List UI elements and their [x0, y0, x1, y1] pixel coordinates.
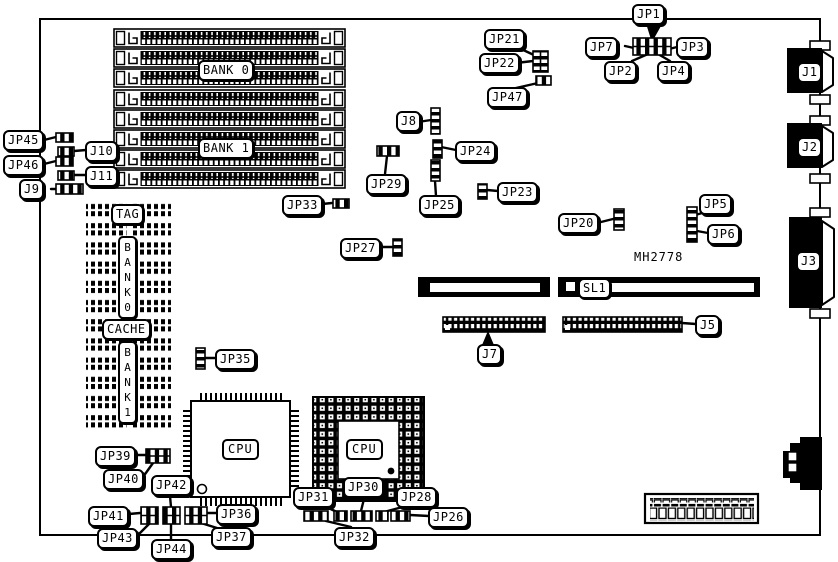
motherboard-diagram: JP1 JP7 JP3 JP2 JP4 JP21 JP22 JP47 J8 JP…: [0, 0, 838, 562]
simm-sockets: [114, 29, 345, 188]
power-connector: [645, 494, 758, 523]
callout-jp45: JP45: [3, 130, 44, 151]
jp26-jumper-block: [391, 511, 410, 521]
callout-jp44: JP44: [151, 539, 192, 560]
header-j5-pin1: [565, 325, 570, 330]
callout-jp28: JP28: [396, 487, 437, 508]
jp25-jumper-block: [431, 160, 440, 181]
callout-j10: J10: [85, 141, 118, 162]
callout-jp1: JP1: [632, 4, 665, 25]
j3-label: J3: [796, 251, 821, 272]
jp29-jumper-block: [377, 146, 399, 156]
callout-jp43: JP43: [97, 528, 138, 549]
callout-jp42: JP42: [151, 475, 192, 496]
callout-jp22: JP22: [479, 53, 520, 74]
callout-jp4: JP4: [657, 61, 690, 82]
callout-jp39: JP39: [95, 446, 136, 467]
callout-jp3: JP3: [676, 37, 709, 58]
callout-jp35: JP35: [215, 349, 256, 370]
jp35-jumper-block: [196, 348, 205, 369]
callout-j9: J9: [19, 179, 44, 200]
isa-slot-sl1-channel: [610, 283, 754, 292]
callout-jp33: JP33: [282, 195, 323, 216]
callout-jp26: JP26: [428, 507, 469, 528]
callout-jp7: JP7: [585, 37, 618, 58]
callout-jp30: JP30: [343, 477, 384, 498]
sl1-label: SL1: [578, 278, 611, 299]
callout-jp47: JP47: [487, 87, 528, 108]
callout-jp24: JP24: [455, 141, 496, 162]
callout-jp27: JP27: [340, 238, 381, 259]
callout-jp23: JP23: [497, 182, 538, 203]
j9-jumper-block: [56, 184, 83, 194]
j11-jumper-block: [58, 171, 74, 180]
callout-jp2: JP2: [604, 61, 637, 82]
callout-jp32: JP32: [334, 527, 375, 548]
j2-label: J2: [797, 137, 822, 158]
header-j7-pin1: [445, 325, 450, 330]
jp46-jumper-block: [56, 157, 73, 166]
jp30-jumper-block: [351, 511, 372, 521]
header-j5: [563, 317, 682, 332]
callout-jp20: JP20: [558, 213, 599, 234]
callout-jp46: JP46: [3, 155, 44, 176]
callout-jp37: JP37: [211, 527, 252, 548]
callout-jp41: JP41: [88, 506, 129, 527]
callout-jp31: JP31: [293, 487, 334, 508]
j10-jumper-block: [58, 147, 74, 156]
jp27-jumper-block: [393, 239, 402, 256]
pga-cpu-label: CPU: [346, 439, 383, 460]
cache-tag-label: TAG: [111, 204, 144, 225]
callout-j11: J11: [85, 166, 118, 187]
callout-j8: J8: [396, 111, 421, 132]
callout-jp40: JP40: [103, 469, 144, 490]
jp20-jumper-block: [614, 209, 624, 230]
callout-jp5: JP5: [699, 194, 732, 215]
jp45-jumper-block: [56, 133, 73, 142]
jp5-jp6-jumper-block: [687, 207, 697, 242]
bank0-label: BANK 0: [198, 60, 254, 81]
qfp-cpu-label: CPU: [222, 439, 259, 460]
pin1-dot: [388, 468, 395, 475]
jp23-jumper-block: [478, 184, 487, 199]
jp32-jumper-block: [304, 511, 328, 521]
j1-label: J1: [797, 62, 822, 83]
bank1-label: BANK 1: [198, 138, 254, 159]
callout-jp36: JP36: [216, 504, 257, 525]
callout-jp29: JP29: [366, 174, 407, 195]
pin1-marker: [198, 485, 207, 494]
cache-bank0-label: BANK0: [118, 236, 137, 319]
callout-jp6: JP6: [707, 224, 740, 245]
j8-jumper-block: [431, 108, 440, 134]
cache-bank1-label: BANK1: [118, 341, 137, 424]
jp31-jumper-block: [334, 511, 347, 521]
jp33-jumper-block: [333, 199, 349, 208]
part-number-text: MH2778: [634, 250, 683, 264]
cache-label: CACHE: [102, 319, 151, 340]
isa-slot-sl1-key: [566, 282, 575, 291]
callout-jp21: JP21: [484, 29, 525, 50]
callout-jp25: JP25: [419, 195, 460, 216]
callout-j7: J7: [477, 344, 502, 365]
jp47-jumper-block: [536, 76, 551, 85]
callout-j5: J5: [695, 315, 720, 336]
jp28-jumper-block: [376, 511, 388, 521]
header-j7: [443, 317, 545, 332]
jp24-jumper-block: [433, 140, 442, 158]
isa-slot-1-key: [430, 283, 540, 292]
